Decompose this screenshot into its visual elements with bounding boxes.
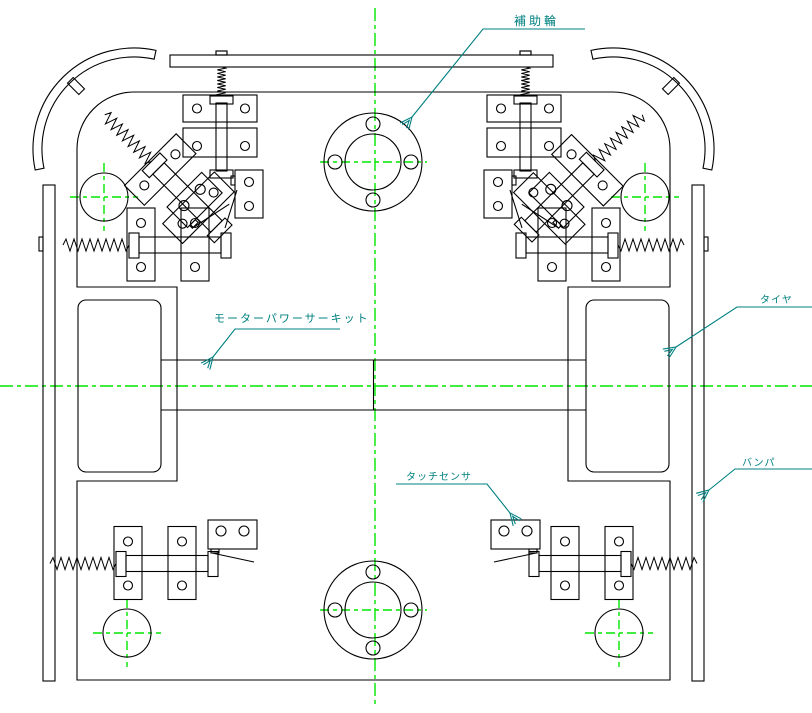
side-bumper-bar-right xyxy=(692,185,704,681)
leader-touch-sensor xyxy=(396,484,510,513)
leader-tire xyxy=(676,307,812,347)
axle-bottom-right xyxy=(529,527,697,600)
label-bumper: バンパ xyxy=(742,457,776,469)
axle-top-right xyxy=(516,208,684,281)
bolt-head xyxy=(216,51,227,55)
bumper-bolt-right xyxy=(487,51,561,178)
leader-bumper xyxy=(709,469,812,490)
sensor-side-plate-right xyxy=(484,170,522,228)
corner-bumper-arc-left xyxy=(33,48,156,170)
leader-motor-power-circuit xyxy=(213,329,340,357)
touch-sensor-bottom-right xyxy=(491,520,540,562)
axle-corner-right xyxy=(498,89,668,259)
annotations: 補助輪 モーターパワーサーキット タイヤ バンパ タッチセンサ xyxy=(213,13,812,513)
motor-power-circuit-band xyxy=(161,360,586,410)
touch-sensor-bottom-left xyxy=(208,520,257,562)
spring-anchor-tab xyxy=(39,237,43,251)
label-auxiliary-wheel: 補助輪 xyxy=(514,13,559,28)
side-bumper-bar-left xyxy=(43,185,55,681)
sensor-side-plate-left xyxy=(225,170,263,228)
label-tire: タイヤ xyxy=(760,294,793,306)
robot-chassis-plan: 補助輪 モーターパワーサーキット タイヤ バンパ タッチセンサ xyxy=(0,0,812,713)
axle-bottom-left xyxy=(50,527,218,600)
corner-bumper-arc-right xyxy=(591,48,714,170)
label-touch-sensor: タッチセンサ xyxy=(406,471,472,483)
axle-corner-left xyxy=(79,89,249,259)
bolt-head xyxy=(520,51,531,55)
spring-anchor-tab xyxy=(704,237,708,251)
front-bumper-bar xyxy=(170,55,553,67)
cad-drawing-canvas: 補助輪 モーターパワーサーキット タイヤ バンパ タッチセンサ xyxy=(0,0,812,713)
leader-auxiliary-wheel xyxy=(412,29,585,117)
spring-anchor-tab xyxy=(68,78,85,95)
label-motor-power-circuit: モーターパワーサーキット xyxy=(214,312,370,325)
spring-anchor-tab xyxy=(663,78,680,95)
bumper-bolt-left xyxy=(183,51,257,178)
axle-assemblies xyxy=(50,89,697,600)
centerlines xyxy=(0,8,812,706)
